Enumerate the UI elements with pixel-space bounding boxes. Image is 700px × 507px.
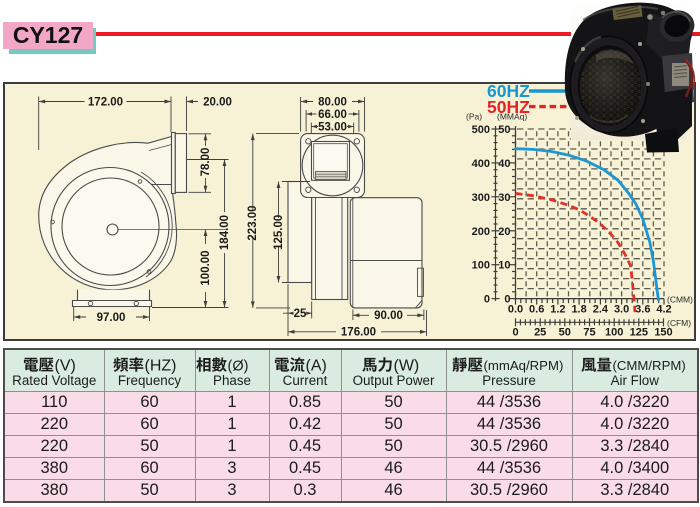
svg-text:53.00: 53.00 xyxy=(318,121,347,133)
svg-text:50: 50 xyxy=(559,326,571,338)
svg-text:0: 0 xyxy=(484,294,490,306)
svg-text:125: 125 xyxy=(630,326,648,338)
svg-text:75: 75 xyxy=(583,326,595,338)
svg-text:400: 400 xyxy=(472,158,490,170)
svg-text:40: 40 xyxy=(498,158,510,170)
svg-text:(V): (V) xyxy=(54,357,75,374)
svg-text:(Pa): (Pa) xyxy=(466,112,482,122)
svg-text:20: 20 xyxy=(498,226,510,238)
svg-text:(A): (A) xyxy=(305,357,326,374)
svg-text:0.0: 0.0 xyxy=(508,303,523,315)
svg-text:223.00: 223.00 xyxy=(247,205,259,240)
svg-text:3.0: 3.0 xyxy=(614,303,629,315)
svg-text:30: 30 xyxy=(498,192,510,204)
svg-text:4.2: 4.2 xyxy=(656,303,671,315)
svg-text:1.2: 1.2 xyxy=(550,303,565,315)
svg-text:500: 500 xyxy=(472,124,490,136)
svg-text:50: 50 xyxy=(498,124,510,136)
svg-text:50HZ: 50HZ xyxy=(487,97,530,117)
svg-text:176.00: 176.00 xyxy=(341,326,376,338)
svg-text:25: 25 xyxy=(294,308,307,320)
svg-text:100: 100 xyxy=(472,260,490,272)
svg-text:300: 300 xyxy=(472,192,490,204)
svg-text:(HZ): (HZ) xyxy=(145,357,177,374)
svg-text:(CMM): (CMM) xyxy=(667,295,693,305)
svg-text:(CFM): (CFM) xyxy=(667,318,691,328)
svg-text:0: 0 xyxy=(512,326,518,338)
svg-text:25: 25 xyxy=(534,326,546,338)
svg-text:10: 10 xyxy=(498,260,510,272)
svg-text:97.00: 97.00 xyxy=(97,312,126,324)
svg-text:90.00: 90.00 xyxy=(374,310,403,322)
svg-text:100.00: 100.00 xyxy=(200,250,212,285)
svg-text:(Ø): (Ø) xyxy=(227,358,248,374)
svg-text:200: 200 xyxy=(472,226,490,238)
svg-text:1.8: 1.8 xyxy=(571,303,586,315)
svg-text:3.6: 3.6 xyxy=(635,303,650,315)
svg-text:20.00: 20.00 xyxy=(203,96,232,108)
svg-text:78.00: 78.00 xyxy=(200,148,212,177)
svg-text:2.4: 2.4 xyxy=(593,303,609,315)
svg-text:(W): (W) xyxy=(394,357,420,374)
svg-text:125.00: 125.00 xyxy=(273,215,285,250)
svg-text:100: 100 xyxy=(605,326,623,338)
svg-text:80.00: 80.00 xyxy=(318,96,347,108)
svg-text:184.00: 184.00 xyxy=(219,215,231,250)
svg-text:150: 150 xyxy=(654,326,672,338)
svg-text:172.00: 172.00 xyxy=(88,96,123,108)
svg-text:(CMM/RPM): (CMM/RPM) xyxy=(613,358,686,373)
svg-text:66.00: 66.00 xyxy=(318,109,347,121)
svg-text:0.6: 0.6 xyxy=(529,303,544,315)
svg-text:(mmAq/RPM): (mmAq/RPM) xyxy=(483,358,563,373)
